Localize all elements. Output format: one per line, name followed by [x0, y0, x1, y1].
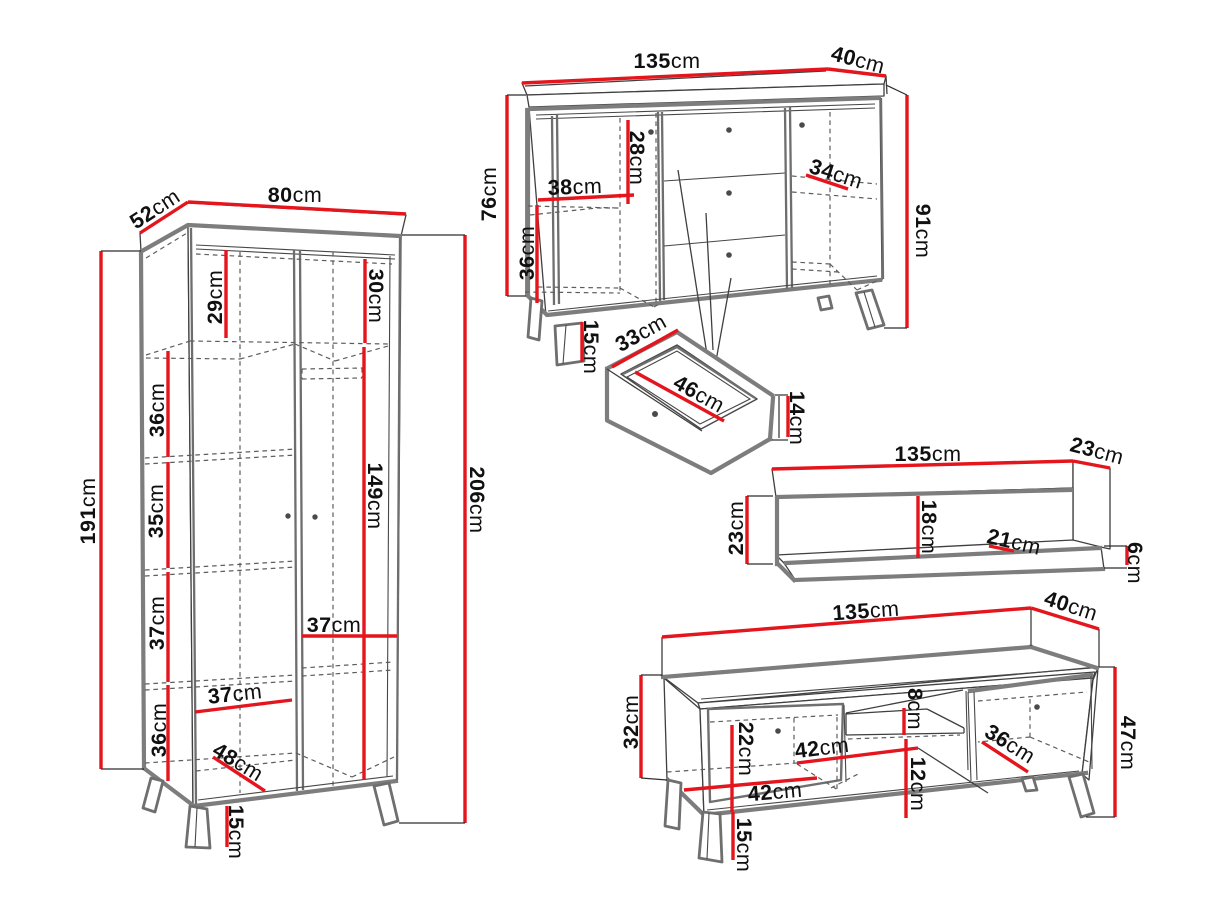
- svg-text:12cm: 12cm: [906, 757, 930, 812]
- svg-text:36cm: 36cm: [145, 383, 169, 438]
- svg-text:15cm: 15cm: [224, 805, 248, 860]
- svg-text:37cm: 37cm: [307, 613, 362, 637]
- svg-text:15cm: 15cm: [579, 320, 603, 375]
- svg-text:23cm: 23cm: [724, 501, 748, 556]
- svg-text:30cm: 30cm: [364, 269, 388, 324]
- svg-text:80cm: 80cm: [268, 183, 323, 207]
- svg-text:76cm: 76cm: [477, 167, 501, 222]
- svg-text:42cm: 42cm: [747, 778, 803, 807]
- svg-text:14cm: 14cm: [785, 391, 809, 446]
- svg-text:28cm: 28cm: [625, 131, 649, 186]
- svg-text:35cm: 35cm: [144, 484, 168, 539]
- svg-text:15cm: 15cm: [732, 818, 756, 873]
- svg-text:135cm: 135cm: [633, 49, 700, 73]
- svg-text:149cm: 149cm: [363, 462, 387, 529]
- svg-text:91cm: 91cm: [911, 204, 935, 259]
- svg-text:38cm: 38cm: [547, 174, 602, 200]
- svg-text:8cm: 8cm: [903, 688, 927, 730]
- svg-text:135cm: 135cm: [894, 442, 961, 466]
- svg-text:135cm: 135cm: [832, 597, 901, 626]
- svg-text:18cm: 18cm: [917, 500, 941, 555]
- svg-text:206cm: 206cm: [465, 466, 489, 533]
- svg-text:37cm: 37cm: [145, 596, 169, 651]
- svg-text:32cm: 32cm: [619, 695, 643, 750]
- svg-text:29cm: 29cm: [203, 270, 227, 325]
- svg-text:191cm: 191cm: [76, 477, 100, 544]
- svg-text:6cm: 6cm: [1123, 542, 1147, 584]
- svg-text:22cm: 22cm: [734, 722, 758, 777]
- svg-text:36cm: 36cm: [147, 703, 171, 758]
- svg-text:36cm: 36cm: [515, 226, 539, 281]
- svg-text:47cm: 47cm: [1116, 716, 1140, 771]
